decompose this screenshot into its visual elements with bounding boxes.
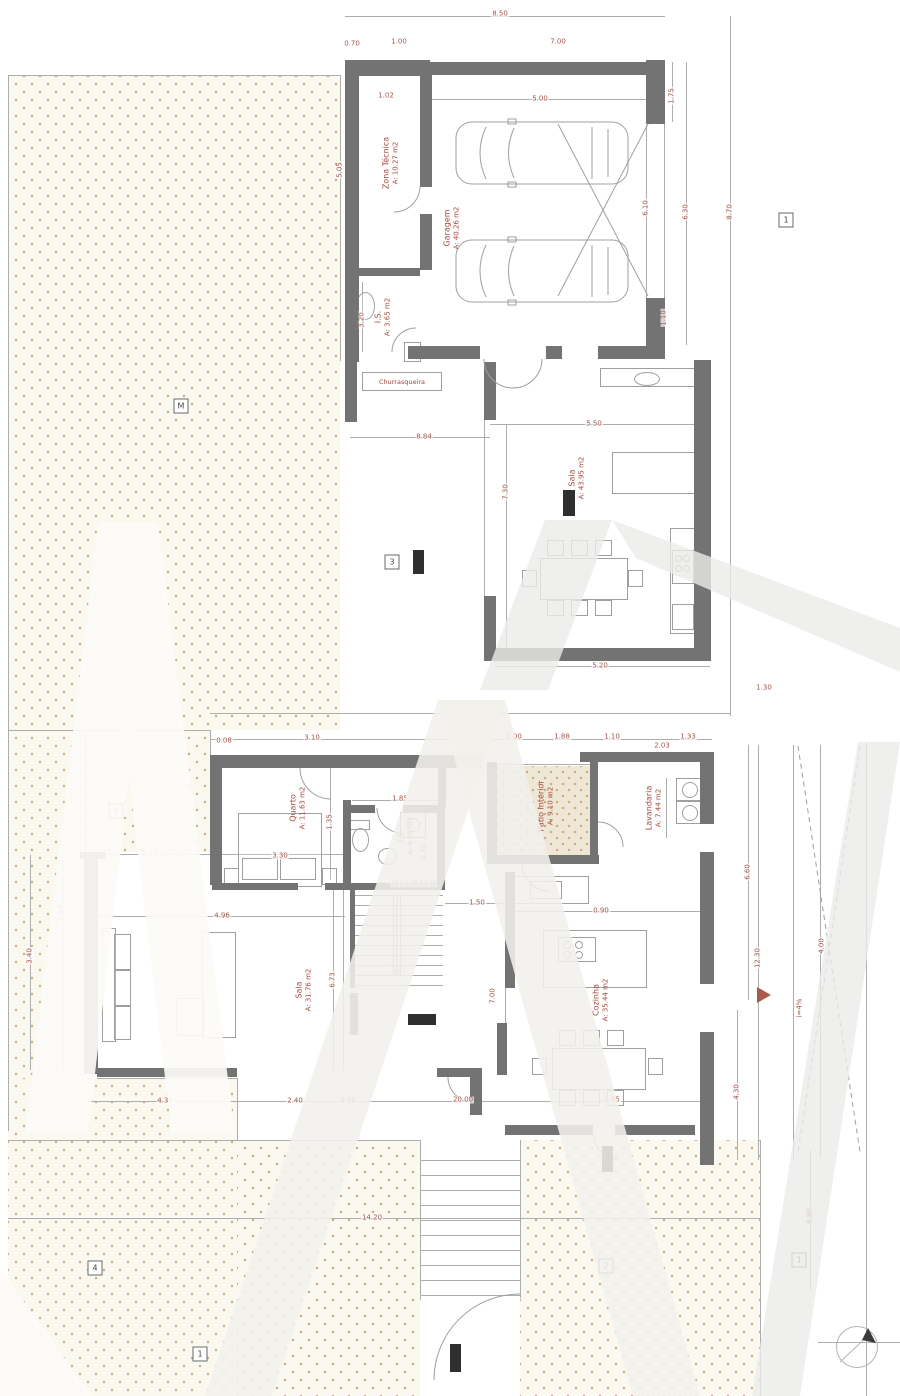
- reference-badge: 1: [779, 213, 794, 228]
- room-area: A: 4.35 m2: [407, 817, 415, 855]
- dimension-label: 7.00: [490, 987, 497, 1005]
- reference-badge: 2: [599, 1259, 614, 1274]
- dimension-label: 4.96: [213, 913, 231, 920]
- dimension-label: 8.50: [491, 11, 509, 18]
- dimension-label: 1.75: [669, 87, 676, 105]
- door-arc: [513, 359, 542, 388]
- dimension-label: 1.30: [755, 685, 773, 692]
- dimension-label: 1.88: [553, 734, 571, 741]
- dimension-label: 4.00: [819, 937, 826, 955]
- room-label-sala-upper: Sala A: 43.95 m2: [568, 457, 585, 500]
- dimension-label: 6.73: [330, 971, 337, 989]
- gate-arc: [434, 1294, 520, 1380]
- dimension-label: 1.85: [391, 796, 409, 803]
- room-name: Quarto: [289, 794, 298, 822]
- room-label-sala-lower: Sala A: 31.76 m2: [295, 969, 312, 1012]
- door-arc: [394, 186, 420, 212]
- room-area: A: 31.76 m2: [305, 969, 313, 1012]
- dimension-label: 2.00: [505, 734, 523, 741]
- dimension-label: 4.30: [156, 1098, 174, 1105]
- car-top-view: [456, 119, 628, 187]
- room-area: A: 7.44 m2: [655, 789, 663, 827]
- door-arc: [392, 328, 416, 352]
- floor-plan-canvas: Zona Técnica A: 10.27 m2 Garagem A: 40.2…: [0, 0, 900, 1396]
- dimension-label: 1.02: [377, 93, 395, 100]
- dimension-label: 4.30: [734, 1083, 741, 1101]
- level-marker-chip: [602, 1146, 613, 1172]
- room-area: A: 9.10 m2: [547, 787, 555, 825]
- level-marker-chip: [450, 1344, 461, 1372]
- slope-dashed-line: [798, 746, 860, 1152]
- dimension-label: 6.60: [745, 863, 752, 881]
- dimension-label: 1.50: [468, 900, 486, 907]
- level-marker-chip: [413, 550, 424, 574]
- room-name: Churrasqueira: [379, 378, 425, 386]
- dimension-label: 7.30: [503, 483, 510, 501]
- room-name: Zona Técnica: [382, 137, 391, 189]
- room-area: A: 43.95 m2: [578, 457, 586, 500]
- dimension-label: 5.20: [591, 663, 609, 670]
- room-area: A: 40.26 m2: [453, 207, 461, 250]
- room-label-patio: Pátio interior A: 9.10 m2: [537, 780, 554, 831]
- dimension-label: 1.00: [390, 39, 408, 46]
- room-name: I.S.: [397, 830, 406, 843]
- room-name: Sala: [568, 469, 577, 486]
- door-arc: [484, 359, 513, 388]
- dimension-label: 5.00: [531, 96, 549, 103]
- dimension-label: 3.30: [271, 853, 289, 860]
- dimension-label: 3.10: [303, 735, 321, 742]
- stairs-formula-label: 18 x 0.18 x 0.25: [391, 881, 438, 887]
- room-label-quarto: Quarto A: 11.63 m2: [289, 787, 306, 830]
- dimension-label: 7.00: [549, 39, 567, 46]
- dimension-label: 6.30: [683, 203, 690, 221]
- dimension-label: 2.85: [603, 1097, 621, 1104]
- dimension-label: 5.05: [337, 161, 344, 179]
- dimension-label: 2.03: [653, 743, 671, 750]
- reference-badge: M: [174, 399, 189, 414]
- dimension-label: 14.20: [361, 1215, 383, 1222]
- reference-badge: 3: [385, 555, 400, 570]
- dimension-label: 5.50: [585, 421, 603, 428]
- room-area: A: 35.44 m2: [602, 979, 610, 1022]
- room-label-is-lower: I.S. A: 4.35 m2: [397, 817, 414, 855]
- dimension-label: 0.90: [592, 908, 610, 915]
- reference-badge: 1: [193, 1347, 208, 1362]
- north-arrow-head: [862, 1328, 876, 1343]
- dimension-label: 2.40: [286, 1098, 304, 1105]
- room-label-garagem: Garagem A: 40.26 m2: [443, 207, 460, 250]
- dimension-label: 1.33: [679, 734, 697, 741]
- room-name: Garagem: [443, 209, 452, 246]
- room-name: Sala: [295, 981, 304, 998]
- level-marker-chip: [408, 1014, 436, 1025]
- car-top-view: [456, 237, 628, 305]
- dimension-label: 0.60: [339, 1098, 357, 1105]
- dimension-label: 1.35: [327, 813, 334, 831]
- dimension-label: 8.70: [727, 203, 734, 221]
- room-name: Cozinha: [592, 984, 601, 1016]
- room-name: I.S.: [374, 311, 383, 324]
- dimension-label: 0.08: [215, 738, 233, 745]
- room-label-zona-tecnica: Zona Técnica A: 10.27 m2: [382, 137, 399, 189]
- room-label-cozinha: Cozinha A: 35.44 m2: [592, 979, 609, 1022]
- dimension-label: 3.20: [359, 311, 366, 329]
- dimension-label: 12.30: [755, 947, 762, 969]
- dimension-label: 3.15: [141, 851, 159, 858]
- room-label-is-upper: I.S. A: 3.65 m2: [374, 298, 391, 336]
- room-area: A: 11.63 m2: [299, 787, 307, 830]
- label-churrasqueira: Churrasqueira: [362, 372, 442, 391]
- dimension-label: 0.70: [343, 41, 361, 48]
- dimension-label: 0.35: [421, 843, 428, 861]
- slope-label: i=4%: [797, 998, 804, 1019]
- dimension-label: 6.10: [643, 199, 650, 217]
- slope-dashed-line: [798, 746, 860, 1152]
- room-area: A: 3.65 m2: [384, 298, 392, 336]
- dimension-label: 1.00: [459, 734, 477, 741]
- dimension-label: 20.00: [452, 1097, 474, 1104]
- room-name: Pátio interior: [537, 780, 546, 831]
- dimension-label: 14.00: [457, 710, 479, 717]
- dimension-label: 8.84: [415, 434, 433, 441]
- reference-badge: 1: [792, 1253, 807, 1268]
- slope-marker-triangle: [757, 987, 771, 1003]
- room-name: Lavandaria: [645, 786, 654, 830]
- dimension-label: 3.40: [27, 947, 34, 965]
- dimension-label: 1.10: [603, 734, 621, 741]
- room-label-lavandaria: Lavandaria A: 7.44 m2: [645, 786, 662, 830]
- door-arc: [598, 822, 623, 847]
- door-arc: [522, 864, 549, 891]
- reference-badge: 5: [109, 804, 124, 819]
- dimension-label: 1.80: [59, 904, 66, 922]
- dimension-label: 1.10: [661, 309, 668, 327]
- reference-badge: 4: [88, 1261, 103, 1276]
- dimension-label: 6.80: [807, 1207, 814, 1225]
- room-area: A: 10.27 m2: [392, 142, 400, 185]
